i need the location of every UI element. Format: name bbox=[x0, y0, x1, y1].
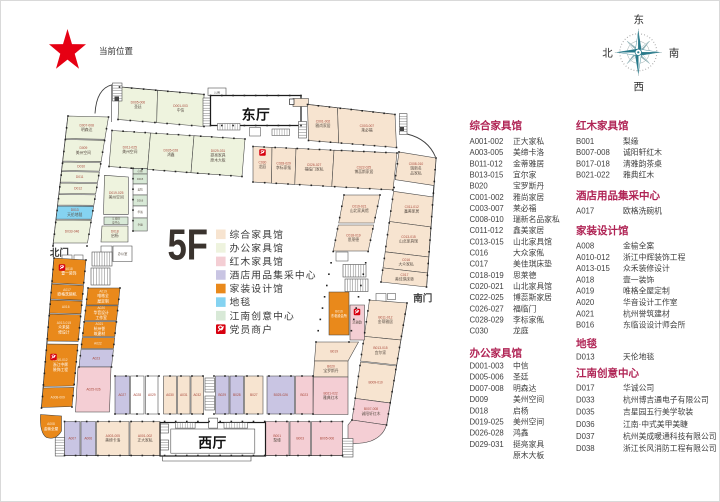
svg-text:B009-010: B009-010 bbox=[368, 381, 382, 385]
svg-text:明森达: 明森达 bbox=[81, 127, 93, 132]
svg-text:A008: A008 bbox=[47, 422, 55, 426]
svg-text:美州空间: 美州空间 bbox=[122, 149, 137, 154]
svg-text:C011-012: C011-012 bbox=[470, 226, 504, 235]
svg-text:杭州博吉通电子有限公司: 杭州博吉通电子有限公司 bbox=[623, 395, 709, 405]
svg-text:金榆全案: 金榆全案 bbox=[623, 241, 654, 251]
svg-text:美佳琪床垫: 美佳琪床垫 bbox=[513, 259, 552, 269]
svg-text:江南·中式美甲美睫: 江南·中式美甲美睫 bbox=[623, 419, 688, 429]
svg-text:华诚: 华诚 bbox=[138, 210, 144, 214]
svg-text:C003-007: C003-007 bbox=[360, 124, 375, 128]
svg-text:启杨: 启杨 bbox=[513, 405, 529, 415]
svg-text:正大家私: 正大家私 bbox=[137, 438, 152, 443]
svg-text:B016: B016 bbox=[335, 309, 343, 313]
svg-text:明森达: 明森达 bbox=[513, 383, 537, 393]
svg-text:圣廷: 圣廷 bbox=[513, 372, 529, 382]
svg-text:D011-025: D011-025 bbox=[123, 145, 137, 149]
svg-text:公用: 公用 bbox=[214, 91, 220, 95]
svg-text:办公家具馆: 办公家具馆 bbox=[230, 241, 284, 254]
svg-text:办公家具馆: 办公家具馆 bbox=[470, 347, 523, 360]
svg-text:D009: D009 bbox=[470, 395, 489, 404]
svg-text:鑫美家居: 鑫美家居 bbox=[513, 225, 544, 235]
svg-text:美州空间: 美州空间 bbox=[109, 194, 124, 199]
svg-text:A008-009: A008-009 bbox=[51, 396, 65, 400]
svg-text:C026-027: C026-027 bbox=[470, 304, 504, 313]
svg-text:D018: D018 bbox=[111, 230, 119, 234]
svg-text:雅典红木: 雅典红木 bbox=[623, 169, 654, 179]
svg-text:B028: B028 bbox=[233, 393, 241, 397]
svg-text:D013: D013 bbox=[71, 208, 79, 212]
svg-text:A013-015: A013-015 bbox=[57, 321, 71, 325]
svg-text:思莱德: 思莱德 bbox=[513, 270, 537, 280]
svg-text:南门: 南门 bbox=[413, 293, 432, 305]
svg-text:党员商户: 党员商户 bbox=[230, 323, 274, 336]
svg-text:雅典红木: 雅典红木 bbox=[323, 395, 338, 400]
svg-text:A019: A019 bbox=[576, 287, 594, 296]
svg-text:杭州誉: 杭州誉 bbox=[94, 326, 106, 331]
svg-text:C017: C017 bbox=[470, 260, 489, 269]
svg-text:C020-021: C020-021 bbox=[470, 282, 504, 291]
svg-text:D011: D011 bbox=[76, 175, 84, 179]
svg-text:A022: A022 bbox=[94, 341, 102, 345]
svg-text:福临门家私: 福临门家私 bbox=[305, 167, 324, 172]
svg-text:C001-002: C001-002 bbox=[316, 120, 331, 124]
svg-text:5F: 5F bbox=[168, 222, 209, 270]
svg-text:D007-008: D007-008 bbox=[470, 384, 504, 393]
svg-text:A018: A018 bbox=[576, 275, 594, 284]
svg-text:B017-018: B017-018 bbox=[576, 159, 610, 168]
svg-text:D001-003: D001-003 bbox=[470, 362, 504, 371]
svg-text:A017: A017 bbox=[576, 207, 594, 216]
svg-text:雅尚家居: 雅尚家居 bbox=[513, 192, 544, 202]
svg-text:美缔卡洛: 美缔卡洛 bbox=[105, 438, 120, 443]
svg-text:C008-010: C008-010 bbox=[470, 215, 505, 224]
svg-text:红木家具馆: 红木家具馆 bbox=[576, 119, 629, 132]
svg-text:A029: A029 bbox=[148, 393, 156, 397]
svg-text:A020: A020 bbox=[97, 306, 105, 310]
svg-text:壹一装饰: 壹一装饰 bbox=[623, 274, 654, 284]
svg-text:B003: B003 bbox=[296, 437, 304, 441]
svg-text:修设计: 修设计 bbox=[58, 330, 70, 335]
svg-text:唯格全屋定制: 唯格全屋定制 bbox=[623, 286, 670, 296]
svg-text:C008-010: C008-010 bbox=[409, 162, 424, 166]
svg-text:A013-015: A013-015 bbox=[576, 264, 610, 273]
svg-text:装饰工程: 装饰工程 bbox=[53, 367, 68, 372]
svg-text:B023: B023 bbox=[300, 393, 308, 397]
svg-text:D005-006: D005-006 bbox=[131, 101, 146, 105]
svg-text:C018-019: C018-019 bbox=[470, 271, 504, 280]
svg-text:D029-031: D029-031 bbox=[211, 149, 226, 153]
svg-text:中信: 中信 bbox=[513, 361, 529, 371]
svg-text:诚阳轩红木: 诚阳轩红木 bbox=[623, 147, 662, 157]
svg-text:A030: A030 bbox=[166, 393, 174, 397]
svg-text:C013-015: C013-015 bbox=[470, 237, 505, 246]
svg-text:B025-026: B025-026 bbox=[274, 393, 288, 397]
svg-text:瑞新名品家私: 瑞新名品家私 bbox=[513, 214, 560, 224]
svg-text:鸿鑫: 鸿鑫 bbox=[167, 152, 175, 157]
svg-text:D033-046: D033-046 bbox=[65, 230, 80, 234]
svg-text:莱必福: 莱必福 bbox=[361, 127, 373, 132]
svg-text:挺亮家具: 挺亮家具 bbox=[513, 439, 544, 449]
svg-text:A017: A017 bbox=[63, 288, 71, 292]
svg-text:A025-026: A025-026 bbox=[86, 388, 100, 392]
svg-text:D017: D017 bbox=[576, 384, 595, 393]
svg-text:B011-012: B011-012 bbox=[470, 159, 503, 168]
svg-text:正大家私: 正大家私 bbox=[513, 136, 544, 146]
svg-text:美缔卡洛: 美缔卡洛 bbox=[513, 147, 544, 157]
svg-text:D038: D038 bbox=[576, 444, 595, 453]
svg-text:华音设计: 华音设计 bbox=[94, 310, 109, 315]
svg-text:D007-008: D007-008 bbox=[79, 123, 94, 127]
svg-text:D019-025: D019-025 bbox=[470, 418, 505, 427]
svg-text:B007-008: B007-008 bbox=[364, 407, 378, 411]
svg-text:D015: D015 bbox=[137, 177, 144, 181]
svg-text:华音设计工作室: 华音设计工作室 bbox=[623, 297, 678, 307]
svg-text:意中心: 意中心 bbox=[112, 221, 120, 225]
svg-text:A001-002: A001-002 bbox=[138, 434, 152, 438]
svg-text:B021-022: B021-022 bbox=[323, 391, 337, 395]
svg-text:东临设设计师会所: 东临设设计师会所 bbox=[623, 320, 686, 330]
svg-text:大众家俬: 大众家俬 bbox=[513, 248, 544, 258]
svg-text:C022-025: C022-025 bbox=[357, 166, 372, 170]
svg-text:东临设会所: 东临设会所 bbox=[331, 313, 348, 318]
svg-text:C017: C017 bbox=[401, 273, 409, 277]
svg-text:宜尔家: 宜尔家 bbox=[375, 350, 387, 355]
svg-text:红木家具馆: 红木家具馆 bbox=[230, 255, 284, 268]
svg-text:挺亮家具: 挺亮家具 bbox=[210, 153, 225, 158]
svg-text:A008: A008 bbox=[576, 242, 594, 251]
svg-text:吉星园五行美学软装: 吉星园五行美学软装 bbox=[623, 407, 693, 417]
svg-text:D010: D010 bbox=[77, 165, 85, 169]
svg-text:C028-029: C028-029 bbox=[470, 315, 504, 324]
svg-text:C022-025: C022-025 bbox=[470, 293, 505, 302]
svg-text:A031: A031 bbox=[180, 393, 188, 397]
svg-text:众禾装修设计: 众禾装修设计 bbox=[623, 263, 670, 273]
svg-text:C003-007: C003-007 bbox=[470, 204, 504, 213]
svg-text:圣廷: 圣廷 bbox=[134, 104, 142, 109]
svg-text:中信: 中信 bbox=[177, 108, 185, 113]
svg-text:梨缘: 梨缘 bbox=[273, 438, 281, 443]
svg-text:山北家具馆: 山北家具馆 bbox=[513, 236, 552, 246]
svg-text:A021: A021 bbox=[96, 322, 104, 326]
svg-text:雅尚家居: 雅尚家居 bbox=[315, 123, 330, 128]
svg-text:杭州誉筑建材: 杭州誉筑建材 bbox=[623, 308, 670, 318]
svg-text:A007: A007 bbox=[68, 437, 76, 441]
svg-text:B016: B016 bbox=[576, 321, 594, 330]
svg-text:A016: A016 bbox=[62, 305, 70, 309]
svg-text:A020: A020 bbox=[576, 298, 595, 307]
svg-text:C028-029: C028-029 bbox=[276, 161, 291, 165]
svg-text:金榆全屋: 金榆全屋 bbox=[44, 426, 59, 431]
svg-text:B005-006: B005-006 bbox=[320, 437, 334, 441]
svg-text:C016: C016 bbox=[470, 249, 489, 258]
svg-text:浙江长风消防工程有限公司: 浙江长风消防工程有限公司 bbox=[623, 443, 717, 453]
svg-text:地毯: 地毯 bbox=[576, 337, 597, 350]
svg-text:宝罗斯丹: 宝罗斯丹 bbox=[513, 181, 544, 191]
svg-text:美州空间: 美州空间 bbox=[513, 394, 544, 404]
svg-text:欧格洗碗机: 欧格洗碗机 bbox=[623, 206, 662, 216]
svg-text:山北家具馆: 山北家具馆 bbox=[350, 208, 369, 213]
svg-text:美佳琪床垫: 美佳琪床垫 bbox=[395, 277, 414, 282]
svg-text:江南创意中心: 江南创意中心 bbox=[576, 367, 639, 380]
svg-text:博蕊斯家居: 博蕊斯家居 bbox=[513, 292, 552, 302]
svg-text:李标家俬: 李标家俬 bbox=[276, 165, 291, 170]
svg-text:C011-012: C011-012 bbox=[405, 205, 419, 209]
svg-text:北: 北 bbox=[602, 47, 613, 59]
svg-text:南: 南 bbox=[669, 46, 680, 59]
svg-text:D029-031: D029-031 bbox=[470, 440, 504, 449]
svg-text:C019-021: C019-021 bbox=[352, 205, 367, 209]
svg-text:D012: D012 bbox=[74, 187, 82, 191]
svg-text:福临门: 福临门 bbox=[513, 303, 537, 313]
svg-text:B029: B029 bbox=[218, 393, 226, 397]
svg-text:D013: D013 bbox=[576, 353, 595, 362]
svg-text:D001-003: D001-003 bbox=[173, 104, 188, 108]
svg-text:诚阳轩红木: 诚阳轩红木 bbox=[362, 411, 381, 416]
svg-text:莱必福: 莱必福 bbox=[513, 203, 537, 213]
svg-text:C026-027: C026-027 bbox=[307, 163, 322, 167]
svg-text:家装设计馆: 家装设计馆 bbox=[230, 282, 284, 295]
svg-text:瑞新名: 瑞新名 bbox=[410, 166, 422, 171]
svg-text:启杨: 启杨 bbox=[111, 233, 119, 238]
svg-text:天伦地毯: 天伦地毯 bbox=[623, 352, 654, 362]
svg-text:工作室: 工作室 bbox=[96, 315, 108, 320]
svg-text:D036: D036 bbox=[576, 420, 595, 429]
svg-text:综合家具馆: 综合家具馆 bbox=[470, 119, 523, 132]
svg-text:当前位置: 当前位置 bbox=[99, 46, 134, 56]
svg-text:A006: A006 bbox=[84, 437, 92, 441]
svg-text:B019: B019 bbox=[330, 350, 338, 354]
svg-text:屋定制: 屋定制 bbox=[97, 298, 109, 303]
svg-text:思莱德: 思莱德 bbox=[348, 237, 360, 242]
svg-text:C013-015: C013-015 bbox=[401, 235, 416, 239]
svg-text:办公室: 办公室 bbox=[118, 251, 128, 256]
svg-text:B001: B001 bbox=[273, 434, 281, 438]
svg-text:A001-002: A001-002 bbox=[470, 137, 504, 146]
svg-text:众禾装: 众禾装 bbox=[58, 325, 70, 330]
svg-text:美州空间: 美州空间 bbox=[76, 150, 91, 155]
svg-text:D016: D016 bbox=[137, 198, 144, 202]
svg-text:鸿鑫: 鸿鑫 bbox=[513, 428, 529, 438]
svg-text:筑建材: 筑建材 bbox=[94, 331, 106, 336]
svg-text:酒店用品集采中心: 酒店用品集采中心 bbox=[576, 189, 660, 202]
svg-text:天伦地毯: 天伦地毯 bbox=[67, 212, 82, 217]
svg-text:浙江中辉: 浙江中辉 bbox=[53, 362, 68, 367]
svg-text:A019: A019 bbox=[99, 290, 107, 294]
svg-text:江南创: 江南创 bbox=[112, 217, 120, 221]
svg-text:A003-005: A003-005 bbox=[106, 434, 120, 438]
svg-text:美院: 美院 bbox=[138, 187, 144, 191]
svg-text:浙江中辉装饰工程: 浙江中辉装饰工程 bbox=[623, 252, 686, 262]
svg-text:华诚公司: 华诚公司 bbox=[623, 383, 654, 393]
svg-text:D005-006: D005-006 bbox=[470, 373, 504, 382]
svg-text:B020: B020 bbox=[470, 182, 489, 191]
svg-text:清雅韵: 清雅韵 bbox=[352, 320, 362, 325]
svg-text:B027: B027 bbox=[250, 393, 258, 397]
svg-text:D018: D018 bbox=[470, 406, 489, 415]
svg-text:A023: A023 bbox=[92, 356, 100, 360]
svg-text:西厅: 西厅 bbox=[198, 436, 227, 451]
svg-text:梨缘: 梨缘 bbox=[623, 136, 639, 146]
svg-text:A027: A027 bbox=[118, 393, 126, 397]
svg-text:山北家具馆: 山北家具馆 bbox=[399, 239, 418, 244]
svg-text:江南创意中心: 江南创意中心 bbox=[230, 309, 295, 322]
svg-text:原木大板: 原木大板 bbox=[513, 450, 544, 460]
svg-text:B013-015: B013-015 bbox=[373, 346, 387, 350]
svg-text:C018-019: C018-019 bbox=[346, 234, 361, 238]
svg-text:A032: A032 bbox=[193, 393, 201, 397]
svg-text:D035: D035 bbox=[576, 408, 595, 417]
svg-text:B007-008: B007-008 bbox=[576, 148, 610, 157]
svg-text:龙庭: 龙庭 bbox=[513, 326, 529, 336]
svg-text:D033: D033 bbox=[576, 396, 595, 405]
svg-text:杭州美成暖通科技有限公司: 杭州美成暖通科技有限公司 bbox=[623, 431, 717, 441]
svg-text:D009: D009 bbox=[79, 146, 87, 150]
svg-text:家装设计馆: 家装设计馆 bbox=[576, 224, 629, 237]
svg-text:壹一装饰: 壹一装饰 bbox=[61, 271, 76, 276]
svg-text:大众家私: 大众家私 bbox=[399, 262, 414, 267]
svg-text:幸运: 幸运 bbox=[138, 222, 144, 226]
svg-text:原木大板: 原木大板 bbox=[210, 158, 225, 163]
svg-text:D037: D037 bbox=[576, 432, 595, 441]
svg-text:综合家具馆: 综合家具馆 bbox=[230, 228, 284, 241]
svg-text:山北家具馆: 山北家具馆 bbox=[513, 281, 552, 291]
svg-text:A028: A028 bbox=[133, 393, 141, 397]
svg-text:D019-025: D019-025 bbox=[109, 191, 124, 195]
svg-text:东厅: 东厅 bbox=[242, 107, 271, 123]
svg-text:B020: B020 bbox=[327, 365, 335, 369]
svg-text:金蒂雅居: 金蒂雅居 bbox=[378, 319, 393, 324]
svg-text:博蕊斯家居: 博蕊斯家居 bbox=[354, 169, 373, 174]
svg-text:东: 东 bbox=[634, 13, 645, 26]
svg-text:C016: C016 bbox=[402, 258, 410, 262]
svg-text:B021-022: B021-022 bbox=[576, 170, 610, 179]
svg-text:A018: A018 bbox=[65, 267, 73, 271]
svg-text:美州空间: 美州空间 bbox=[513, 417, 544, 427]
svg-text:唯格全: 唯格全 bbox=[97, 293, 109, 298]
svg-text:D026-028: D026-028 bbox=[470, 429, 504, 438]
svg-text:宜尔家: 宜尔家 bbox=[513, 169, 537, 179]
svg-text:金蒂雅居: 金蒂雅居 bbox=[513, 158, 544, 168]
svg-text:酒店用品集采中心: 酒店用品集采中心 bbox=[230, 269, 317, 282]
svg-text:清雅韵茶桌: 清雅韵茶桌 bbox=[623, 158, 662, 168]
svg-text:A003-005: A003-005 bbox=[470, 148, 504, 157]
svg-text:C001-002: C001-002 bbox=[470, 193, 504, 202]
svg-text:欧格洗碗机: 欧格洗碗机 bbox=[58, 291, 77, 296]
svg-text:李标家俬: 李标家俬 bbox=[513, 314, 544, 324]
svg-text:品家私: 品家私 bbox=[410, 171, 422, 176]
svg-text:C030: C030 bbox=[258, 160, 266, 164]
svg-text:西: 西 bbox=[634, 81, 645, 93]
svg-text:龙庭: 龙庭 bbox=[259, 164, 267, 169]
svg-text:A010-012: A010-012 bbox=[576, 253, 610, 262]
svg-text:B013-015: B013-015 bbox=[470, 170, 504, 179]
svg-text:宝罗斯丹: 宝罗斯丹 bbox=[323, 368, 338, 373]
svg-text:鑫美家居: 鑫美家居 bbox=[404, 208, 419, 213]
svg-text:B001: B001 bbox=[576, 137, 594, 146]
svg-text:地毯: 地毯 bbox=[230, 296, 252, 309]
svg-text:C030: C030 bbox=[470, 327, 489, 336]
svg-text:B011-012: B011-012 bbox=[378, 315, 392, 319]
svg-text:D026-028: D026-028 bbox=[164, 148, 179, 152]
svg-text:A021: A021 bbox=[576, 309, 594, 318]
